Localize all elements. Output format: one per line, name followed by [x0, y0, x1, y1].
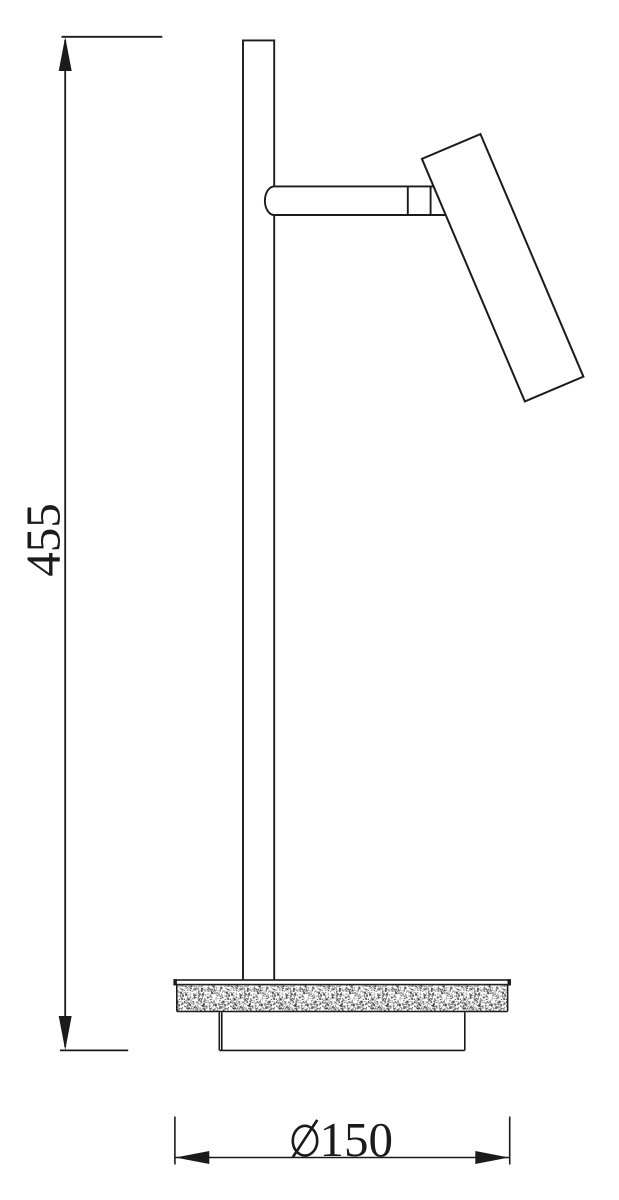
svg-text:455: 455 [16, 503, 71, 577]
svg-text:150: 150 [320, 1112, 394, 1167]
